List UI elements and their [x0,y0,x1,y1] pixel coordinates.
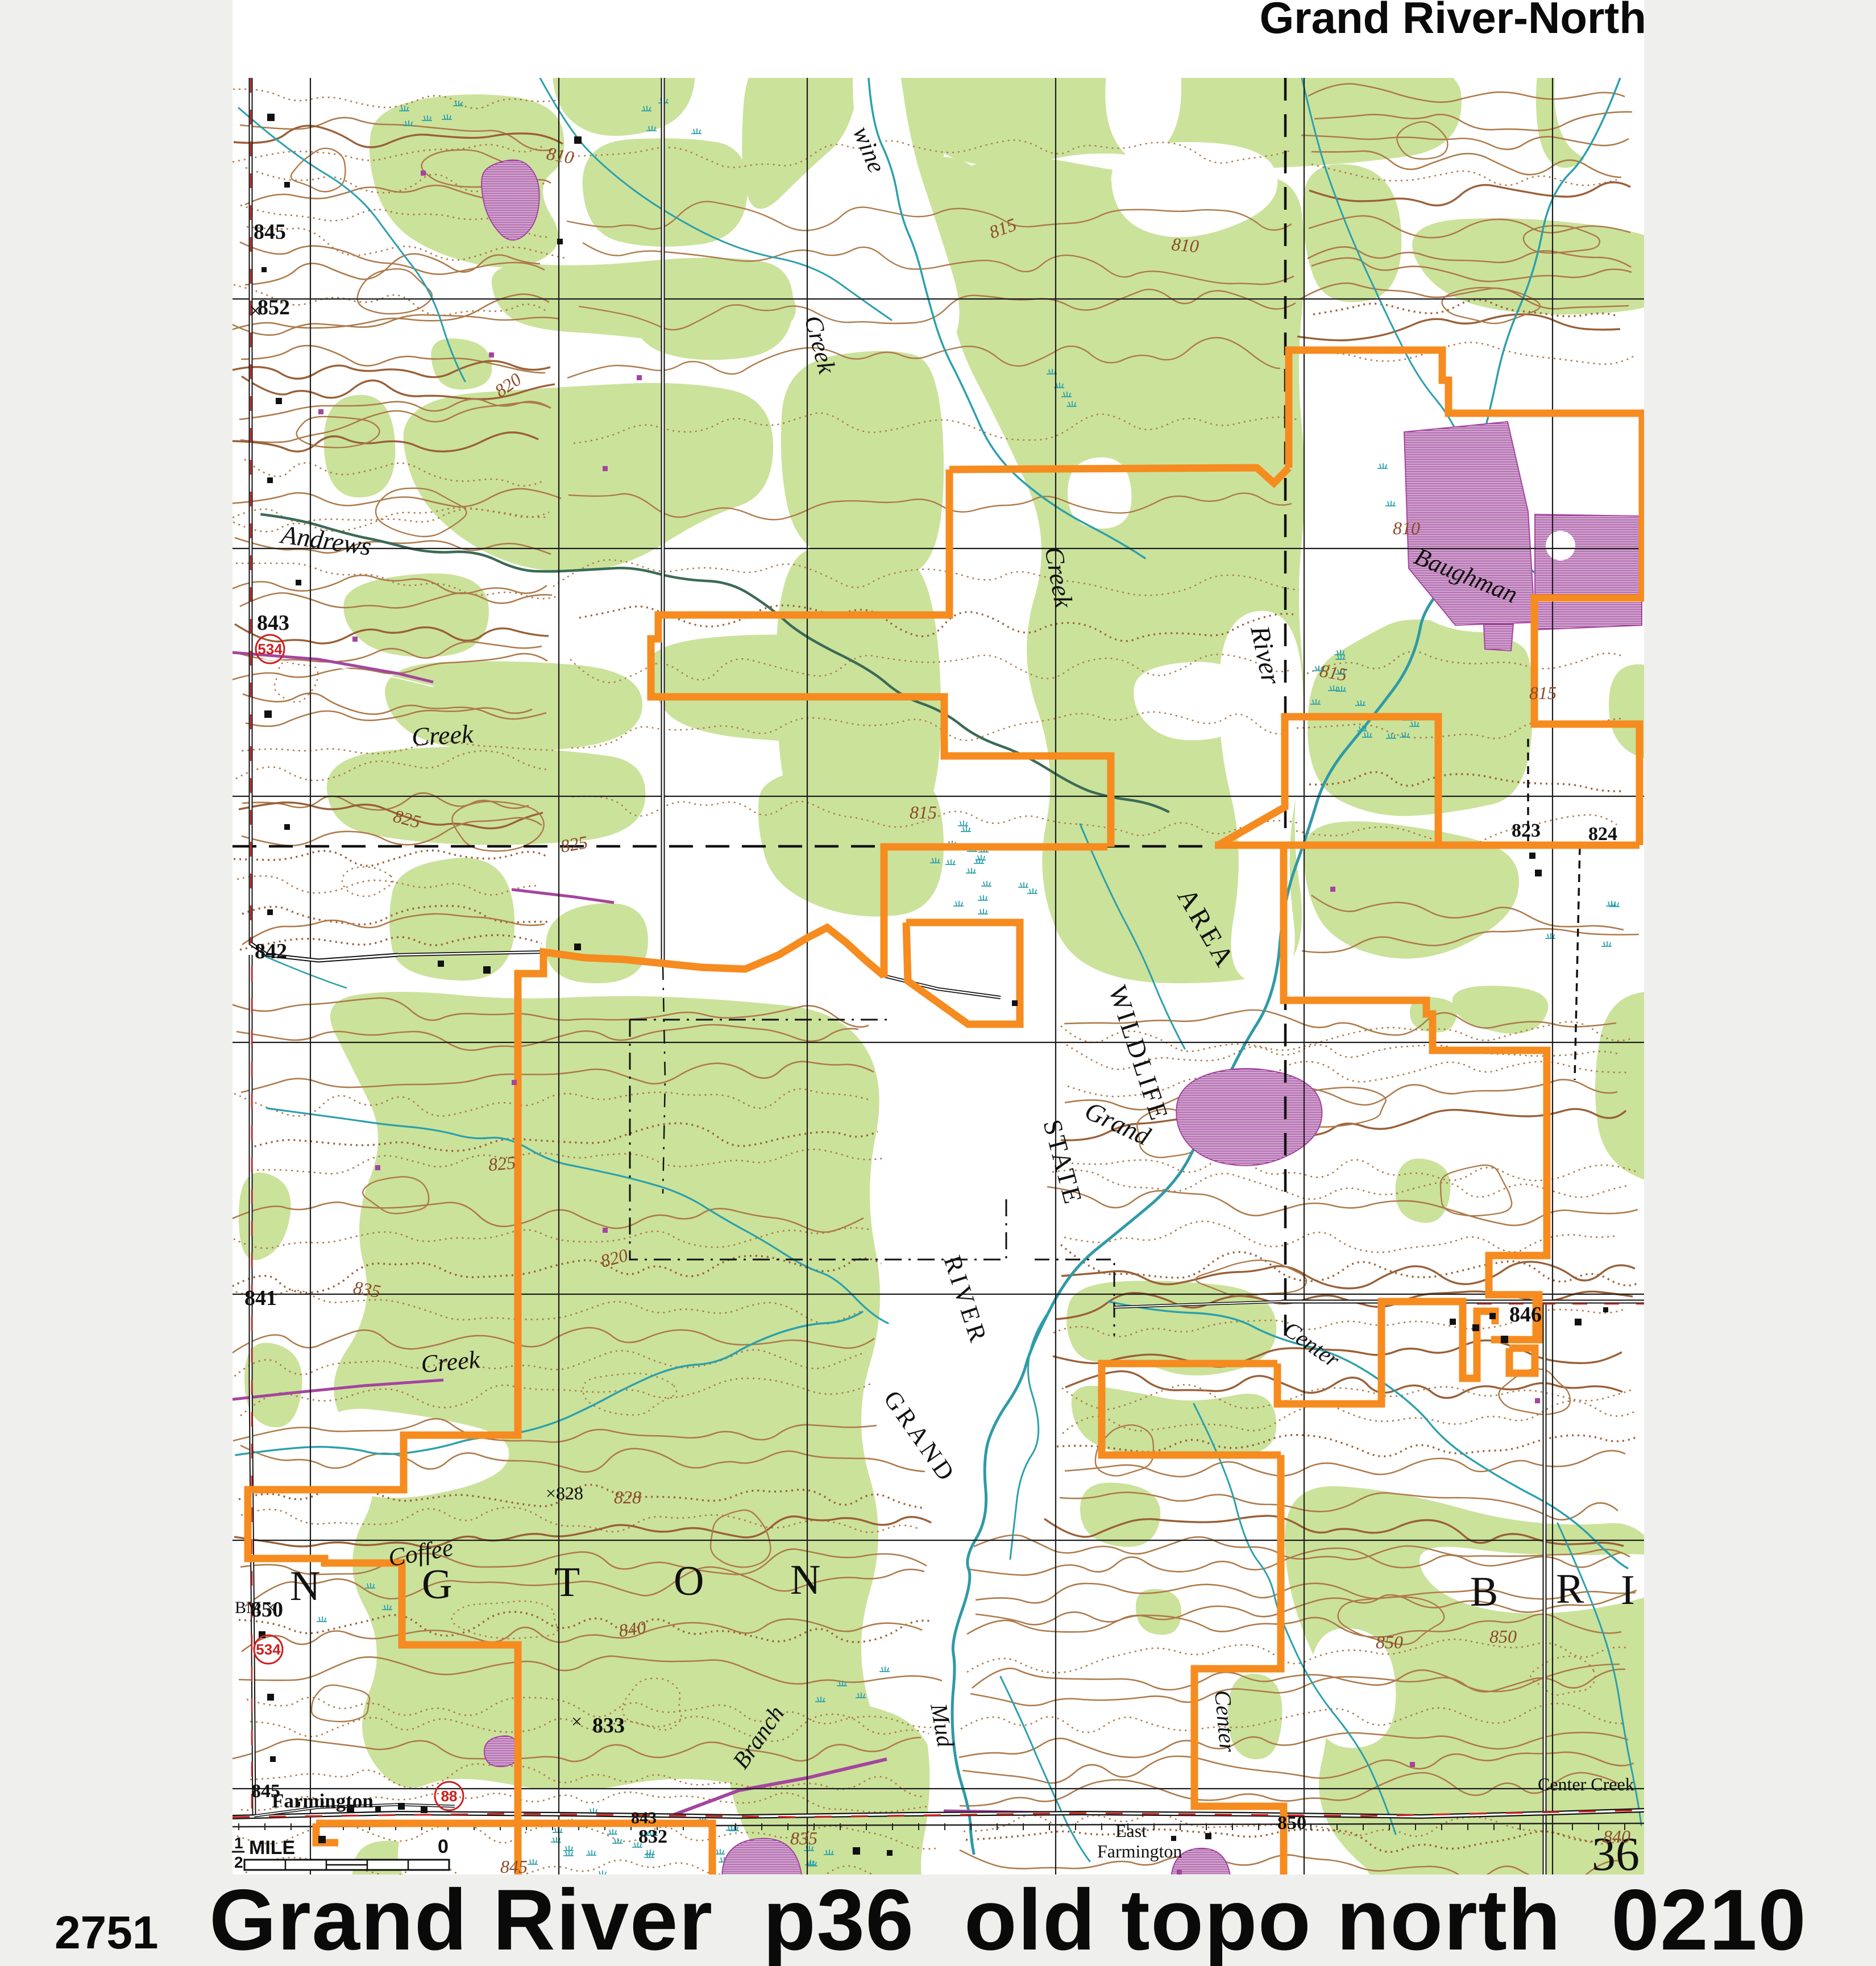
svg-text:0: 0 [438,1836,449,1857]
svg-text:845: 845 [254,220,286,244]
svg-text:835: 835 [790,1828,817,1848]
svg-text:B: B [1470,1569,1498,1615]
svg-text:88: 88 [441,1788,458,1805]
svg-text:843: 843 [257,611,289,635]
svg-text:Grand River-North: Grand River-North [1260,0,1646,43]
svg-text:815: 815 [910,802,937,822]
svg-text:852: 852 [258,296,290,319]
svg-text:840: 840 [1603,1826,1630,1847]
svg-text:×: × [571,1711,582,1732]
svg-text:Farmington: Farmington [272,1790,373,1812]
svg-text:Farmington: Farmington [1097,1841,1182,1861]
svg-text:R: R [1556,1566,1584,1612]
svg-text:N: N [290,1563,320,1610]
svg-text:1: 1 [234,1834,243,1852]
svg-text:828: 828 [614,1487,641,1507]
svg-text:850: 850 [1376,1632,1403,1652]
svg-text:824: 824 [1588,824,1617,845]
svg-text:MILE: MILE [249,1837,295,1859]
svg-text:833: 833 [592,1714,625,1738]
svg-text:T: T [554,1559,580,1606]
svg-text:Creek: Creek [411,719,475,751]
svg-text:823: 823 [1512,820,1541,841]
svg-text:534: 534 [258,641,283,658]
svg-text:×: × [249,298,262,323]
svg-text:846: 846 [1509,1303,1542,1327]
svg-text:Grand River p36 old topo nor: Grand River p36 old topo north 0210 [209,1872,1807,1966]
svg-text:815: 815 [1529,683,1557,703]
svg-text:534: 534 [256,1641,281,1658]
svg-text:East: East [1115,1820,1147,1841]
svg-text:841: 841 [244,1286,277,1310]
svg-text:840: 840 [617,1617,648,1641]
svg-text:BM ×: BM × [235,1598,275,1617]
svg-text:I: I [1621,1567,1635,1614]
svg-text:O: O [674,1558,704,1605]
svg-text:832: 832 [638,1826,667,1847]
svg-text:845: 845 [251,1781,280,1802]
svg-text:810: 810 [1171,234,1200,256]
svg-text:Center: Center [1210,1689,1240,1753]
svg-text:Creek: Creek [420,1345,482,1378]
svg-text:N: N [790,1557,820,1603]
svg-text:Center Creek: Center Creek [1538,1774,1634,1794]
svg-text:G: G [422,1561,452,1608]
svg-text:850: 850 [1277,1813,1306,1834]
svg-text:825: 825 [487,1152,516,1175]
svg-text:2: 2 [234,1853,243,1871]
svg-text:850: 850 [1489,1626,1517,1647]
svg-text:843: 843 [631,1809,657,1827]
svg-text:810: 810 [1393,518,1420,538]
svg-text:842: 842 [255,940,287,963]
svg-text:2751: 2751 [55,1907,158,1959]
svg-text:×828: ×828 [546,1483,583,1503]
